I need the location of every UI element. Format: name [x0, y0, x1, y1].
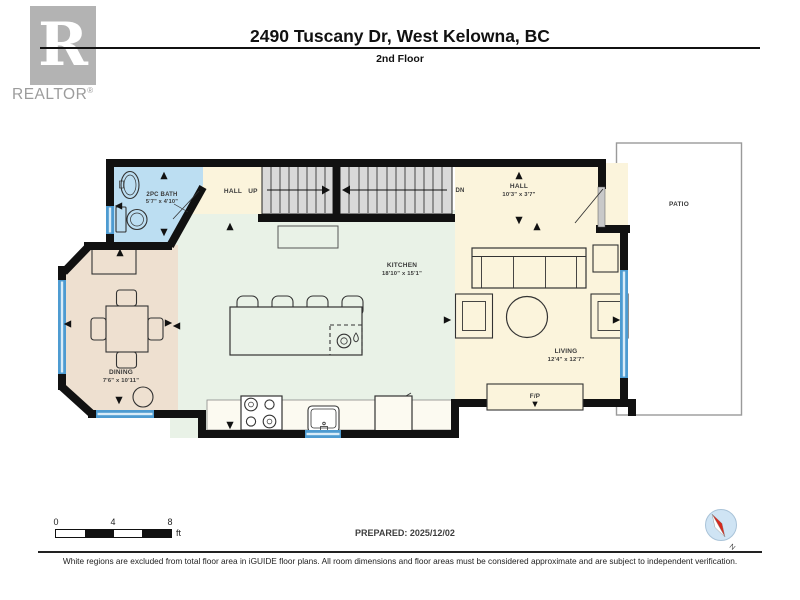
stairs-down-label: DN: [455, 188, 464, 194]
stairs: [262, 166, 452, 214]
hall-up-label: HALL: [224, 188, 242, 195]
kitchen-dims: 18'10" x 15'1": [382, 271, 422, 277]
living-label: LIVING: [555, 348, 578, 355]
fridge-icon: [375, 393, 412, 433]
kitchen-sink-icon: [308, 406, 339, 432]
scale-tick-0: 0: [53, 517, 58, 527]
prepared-date: PREPARED: 2025/12/02: [0, 528, 800, 538]
patio-door-panel: [598, 187, 605, 227]
living-dims: 12'4" x 12'7": [548, 357, 585, 363]
footer-divider: [38, 551, 762, 553]
stove-icon: [241, 396, 282, 430]
kitchen-label: KITCHEN: [387, 262, 417, 269]
patio-label: PATIO: [669, 201, 689, 208]
stairs-up-label: UP: [248, 188, 258, 195]
dining-bottom-window: [96, 410, 154, 418]
compass-icon: N: [698, 504, 746, 552]
scale-tick-4: 4: [110, 517, 115, 527]
hall-label: HALL: [510, 183, 528, 190]
dining-floor: [63, 245, 178, 414]
scale-tick-8: 8: [167, 517, 172, 527]
dining-label: DINING: [109, 369, 133, 376]
dining-dims: 7'6" x 10'11": [103, 378, 139, 384]
kitchen-window: [305, 430, 341, 438]
sofa: [472, 248, 586, 288]
fireplace: F/P: [487, 384, 583, 410]
bath-dims: 5'7" x 4'10": [146, 199, 178, 205]
floorplan-page: R REALTOR® 2490 Tuscany Dr, West Kelowna…: [0, 0, 800, 600]
footer-disclaimer: White regions are excluded from total fl…: [0, 556, 800, 566]
patio-area: [617, 143, 742, 415]
bath-label: 2PC BATH: [146, 192, 177, 198]
floorplan-drawing: F/P 2PC BATH 5'7" x 4'10": [0, 0, 800, 600]
hall-dims: 10'3" x 3'7": [502, 192, 535, 198]
fireplace-label: F/P: [530, 393, 540, 400]
living-window: [620, 270, 628, 378]
dining-left-window: [58, 280, 66, 374]
bath-window: [106, 206, 114, 234]
